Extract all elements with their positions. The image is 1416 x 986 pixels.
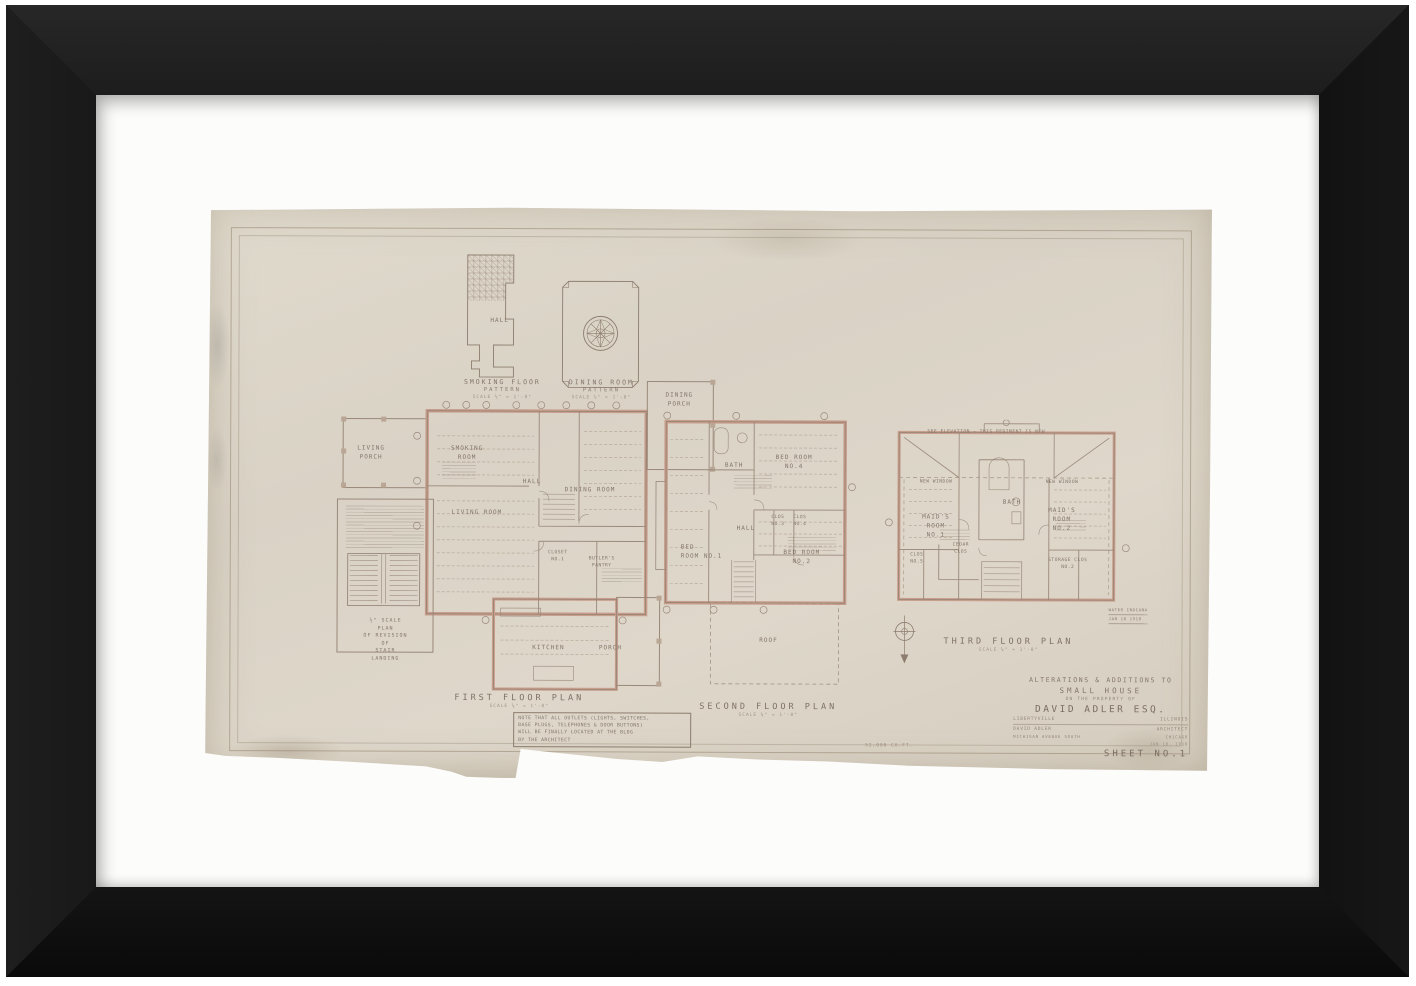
stair-detail-caption: ½" SCALE PLAN OF REVISION OF STAIR LANDI… xyxy=(362,618,409,663)
title-line2: SMALL HOUSE xyxy=(1013,686,1188,696)
room-label-clos3: CLOS NO.3 xyxy=(771,515,784,529)
title-line3: ON THE PROPERTY OF xyxy=(1013,697,1188,703)
frame-right-rail xyxy=(1319,5,1409,977)
handwritten-note xyxy=(346,505,424,549)
room-label-hall2: HALL xyxy=(737,524,755,533)
drawing-date: JAN 18, 1918 xyxy=(1013,741,1188,747)
room-label-bath2: BATH xyxy=(725,461,743,470)
third-floor-plan-scale: SCALE ¼" = 1'-0" xyxy=(979,648,1038,653)
title-block: ALTERATIONS & ADDITIONS TO SMALL HOUSE O… xyxy=(1013,676,1188,760)
pediment-note: SEE ELEVATION — THIS PEDIMENT IS NEW xyxy=(906,429,1066,436)
title-line1: ALTERATIONS & ADDITIONS TO xyxy=(1013,676,1188,685)
handwritten-note xyxy=(788,537,836,551)
client-name: DAVID ADLER ESQ. xyxy=(1013,704,1188,716)
architect-city: CHICAGO xyxy=(1166,734,1188,739)
room-label-storage-clos: STORAGE CLOS NO.2 xyxy=(1048,558,1087,572)
architect-title: ARCHITECT xyxy=(1157,727,1189,732)
second-floor-plan-title: SECOND FLOOR PLAN xyxy=(699,702,837,712)
architect-address: MICHIGAN AVENUE SOUTH xyxy=(1013,734,1080,739)
room-label-cedar-clos: CEDAR CLOS xyxy=(953,543,969,557)
room-label-bedroom1: BED ROOM NO.1 xyxy=(681,543,723,561)
first-floor-plan-scale: SCALE ¼" = 1'-0" xyxy=(490,704,549,709)
stamp-line1: WATER INDIANA xyxy=(1109,606,1148,615)
stair-revision-detail: ½" SCALE PLAN OF REVISION OF STAIR LANDI… xyxy=(336,498,434,652)
client-state: ILLINOIS xyxy=(1160,717,1188,722)
pattern-hall-label: HALL xyxy=(490,316,508,325)
stair-detail-drawing xyxy=(338,551,431,611)
frame-top-rail xyxy=(6,5,1409,95)
client-city: LIBERTYVILLE xyxy=(1013,717,1055,722)
second-floor-plan-scale: SCALE ¼" = 1'-0" xyxy=(739,713,798,718)
room-label-dining-porch: DINING PORCH xyxy=(665,391,693,409)
title-block-rule xyxy=(1013,724,1188,726)
room-label-living-porch: LIVING PORCH xyxy=(357,444,385,462)
cubic-feet-note: 52,000 CU.FT. xyxy=(865,743,913,748)
framed-drawing-photo: HALL SMOKING FLOOR PATTERN SCALE ½" = 1'… xyxy=(0,0,1416,986)
room-label-smoking-room: SMOKING ROOM xyxy=(451,444,483,462)
room-label-hall: HALL xyxy=(523,477,541,486)
smoking-room-floor-pattern-detail xyxy=(449,249,549,381)
stamp-line2: JAN 18 1918 xyxy=(1109,615,1148,624)
handwritten-note xyxy=(602,568,642,582)
sheet-number: SHEET NO.1 xyxy=(1013,749,1188,760)
handwritten-note xyxy=(734,475,772,491)
room-label-bedroom4: BED ROOM NO.4 xyxy=(776,453,813,471)
north-arrow-icon xyxy=(890,615,918,667)
architect-name: DAVID ADLER xyxy=(1013,727,1052,732)
handwritten-note xyxy=(1056,520,1086,532)
first-floor-plan-title: FIRST FLOOR PLAN xyxy=(454,693,584,703)
room-label-porch: PORCH xyxy=(599,643,622,652)
room-label-clos4: CLOS NO.4 xyxy=(793,515,806,529)
room-label-clos5: CLOS NO.5 xyxy=(910,552,923,566)
room-label-dining-room: DINING ROOM xyxy=(565,485,616,494)
general-note-box: NOTE THAT ALL OUTLETS (LIGHTS, SWITCHES,… xyxy=(513,712,691,747)
handwritten-note xyxy=(442,462,476,480)
new-window-label-left: NEW WINDOW xyxy=(920,479,953,486)
frame-bottom-rail xyxy=(6,887,1409,977)
room-label-closet1: CLOSET NO.1 xyxy=(548,550,568,564)
revision-stamp-note: WATER INDIANA JAN 18 1918 xyxy=(1109,606,1148,625)
drawing-paper: HALL SMOKING FLOOR PATTERN SCALE ½" = 1'… xyxy=(205,205,1212,781)
room-label-kitchen: KITCHEN xyxy=(532,643,564,652)
room-label-bath3: BATH xyxy=(1003,498,1021,507)
third-floor-plan-drawing xyxy=(884,419,1133,620)
room-label-living-room: LIVING ROOM xyxy=(452,508,503,517)
handwritten-note xyxy=(940,530,970,542)
third-floor-plan-title: THIRD FLOOR PLAN xyxy=(944,637,1074,647)
room-label-roof: ROOF xyxy=(759,636,777,645)
new-window-label-right: NEW WINDOW xyxy=(1046,480,1079,487)
frame-left-rail xyxy=(6,5,96,977)
